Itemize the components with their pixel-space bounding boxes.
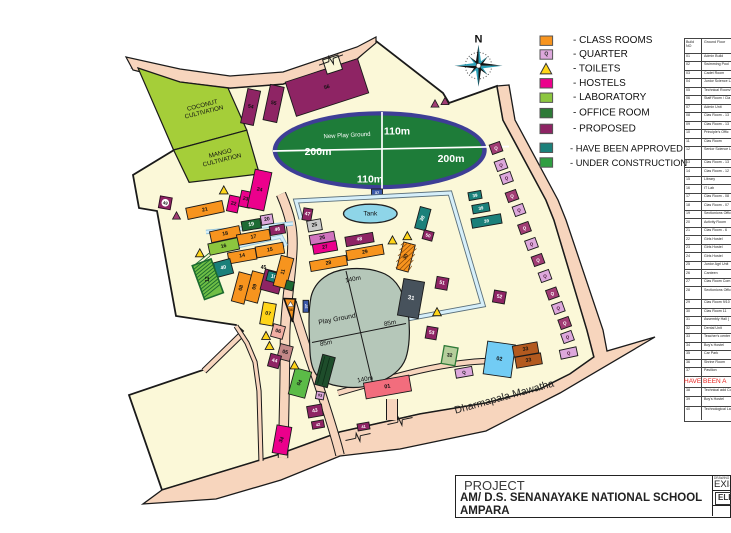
svg-text:Q: Q (494, 146, 498, 151)
svg-text:- PROPOSED: - PROPOSED (573, 123, 636, 134)
svg-text:25: 25 (311, 222, 318, 229)
svg-text:33: 33 (522, 346, 529, 353)
svg-text:20: 20 (264, 216, 271, 223)
svg-text:26: 26 (319, 235, 326, 242)
svg-text:- TOILETS: - TOILETS (573, 63, 621, 74)
svg-text:45: 45 (261, 265, 267, 271)
svg-text:27: 27 (322, 244, 329, 251)
svg-text:Tank: Tank (363, 210, 378, 217)
svg-text:Q: Q (499, 163, 503, 168)
svg-text:14: 14 (239, 253, 246, 260)
svg-text:36: 36 (289, 307, 294, 312)
svg-text:Q: Q (536, 258, 540, 263)
svg-text:Q: Q (563, 321, 567, 326)
svg-text:15: 15 (267, 247, 274, 254)
svg-text:03: 03 (318, 393, 323, 398)
svg-text:33: 33 (525, 357, 532, 364)
svg-text:28: 28 (325, 260, 332, 267)
svg-text:02: 02 (496, 356, 503, 363)
svg-text:Q: Q (543, 274, 547, 279)
svg-text:01: 01 (384, 384, 391, 391)
svg-text:Q: Q (544, 52, 548, 58)
svg-text:Q: Q (530, 242, 534, 247)
svg-text:110m: 110m (384, 126, 410, 138)
svg-text:- UNDER CONSTRUCTION: - UNDER CONSTRUCTION (570, 157, 687, 168)
svg-text:29: 29 (362, 249, 369, 256)
svg-text:12: 12 (205, 276, 211, 282)
svg-text:- QUARTER: - QUARTER (573, 49, 628, 60)
svg-text:Q: Q (517, 208, 521, 213)
svg-text:200m: 200m (438, 153, 465, 165)
svg-text:19: 19 (248, 221, 255, 228)
svg-text:Q: Q (523, 226, 527, 231)
svg-text:17: 17 (250, 234, 257, 241)
svg-text:- HOSTELS: - HOSTELS (573, 78, 626, 89)
svg-text:Q: Q (551, 291, 555, 296)
svg-text:- HAVE BEEN APPROVED: - HAVE BEEN APPROVED (570, 142, 683, 153)
svg-text:- CLASS ROOMS: - CLASS ROOMS (573, 35, 653, 46)
svg-text:N: N (475, 34, 483, 46)
svg-text:07: 07 (265, 311, 272, 318)
svg-text:- LABORATORY: - LABORATORY (573, 92, 647, 103)
svg-text:Q: Q (557, 306, 561, 311)
svg-text:37: 37 (303, 303, 308, 308)
svg-text:Q: Q (566, 335, 570, 340)
svg-text:110m: 110m (357, 174, 383, 186)
svg-text:- OFFICE ROOM: - OFFICE ROOM (573, 108, 650, 119)
svg-text:Q: Q (567, 351, 571, 356)
svg-text:Q: Q (505, 176, 509, 181)
svg-text:200m: 200m (305, 146, 332, 158)
svg-text:Q: Q (510, 194, 514, 199)
